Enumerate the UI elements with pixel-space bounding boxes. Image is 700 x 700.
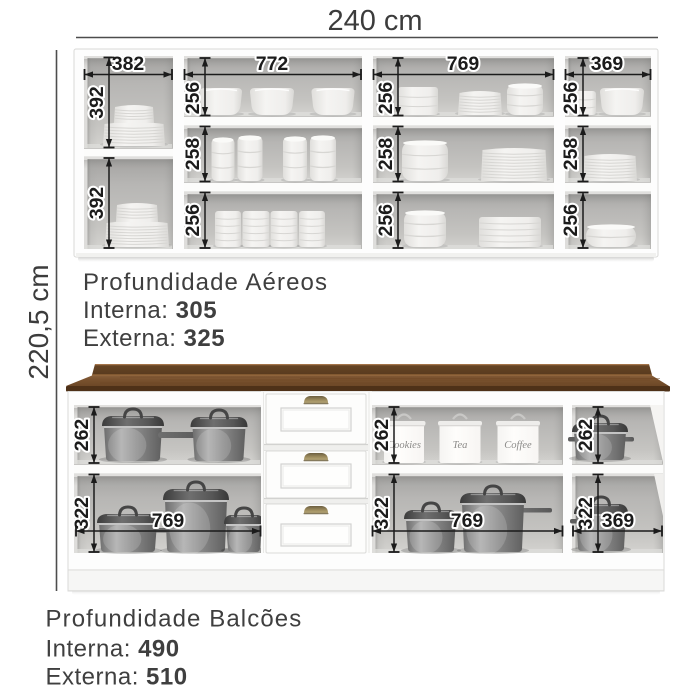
svg-text:322: 322 [575, 497, 597, 530]
svg-text:769: 769 [451, 510, 484, 532]
svg-text:256: 256 [375, 204, 397, 237]
svg-text:262: 262 [71, 419, 93, 452]
svg-text:256: 256 [375, 82, 397, 115]
svg-text:382: 382 [112, 53, 145, 75]
svg-text:262: 262 [575, 419, 597, 452]
svg-text:240 cm: 240 cm [327, 5, 422, 37]
svg-text:392: 392 [86, 86, 108, 119]
svg-text:Externa: 325: Externa: 325 [83, 325, 225, 352]
svg-text:Profundidade Balcões: Profundidade Balcões [46, 606, 303, 633]
svg-text:Externa: 510: Externa: 510 [46, 664, 188, 691]
svg-text:769: 769 [447, 53, 480, 75]
svg-text:258: 258 [560, 138, 582, 171]
svg-text:369: 369 [591, 53, 624, 75]
svg-text:Coffee: Coffee [504, 440, 532, 451]
svg-text:Interna: 490: Interna: 490 [46, 636, 180, 663]
svg-text:258: 258 [182, 138, 204, 171]
svg-text:256: 256 [182, 82, 204, 115]
svg-text:262: 262 [371, 419, 393, 452]
svg-text:256: 256 [560, 82, 582, 115]
svg-text:769: 769 [152, 510, 185, 532]
svg-text:392: 392 [86, 187, 108, 220]
svg-text:256: 256 [182, 204, 204, 237]
svg-text:322: 322 [371, 497, 393, 530]
svg-text:258: 258 [375, 138, 397, 171]
svg-text:772: 772 [256, 53, 289, 75]
svg-text:220,5 cm: 220,5 cm [23, 264, 54, 379]
svg-text:Tea: Tea [453, 440, 468, 451]
svg-text:369: 369 [602, 510, 635, 532]
svg-text:322: 322 [71, 497, 93, 530]
svg-text:Interna: 305: Interna: 305 [83, 297, 217, 324]
svg-text:256: 256 [560, 204, 582, 237]
svg-text:Profundidade Aéreos: Profundidade Aéreos [83, 269, 328, 296]
